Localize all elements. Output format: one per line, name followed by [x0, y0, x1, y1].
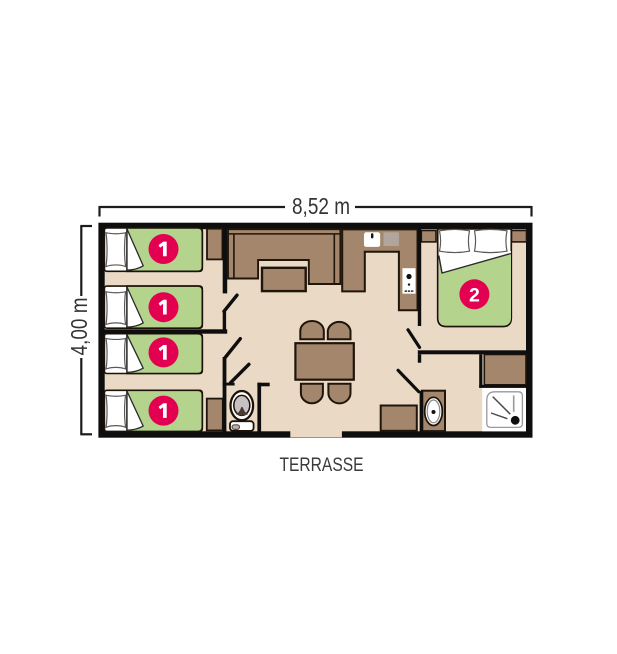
svg-text:8,52 m: 8,52 m	[292, 193, 350, 219]
svg-text:TERRASSE: TERRASSE	[280, 454, 364, 476]
svg-text:4,00 m: 4,00 m	[66, 298, 92, 356]
svg-text:2: 2	[469, 284, 480, 306]
